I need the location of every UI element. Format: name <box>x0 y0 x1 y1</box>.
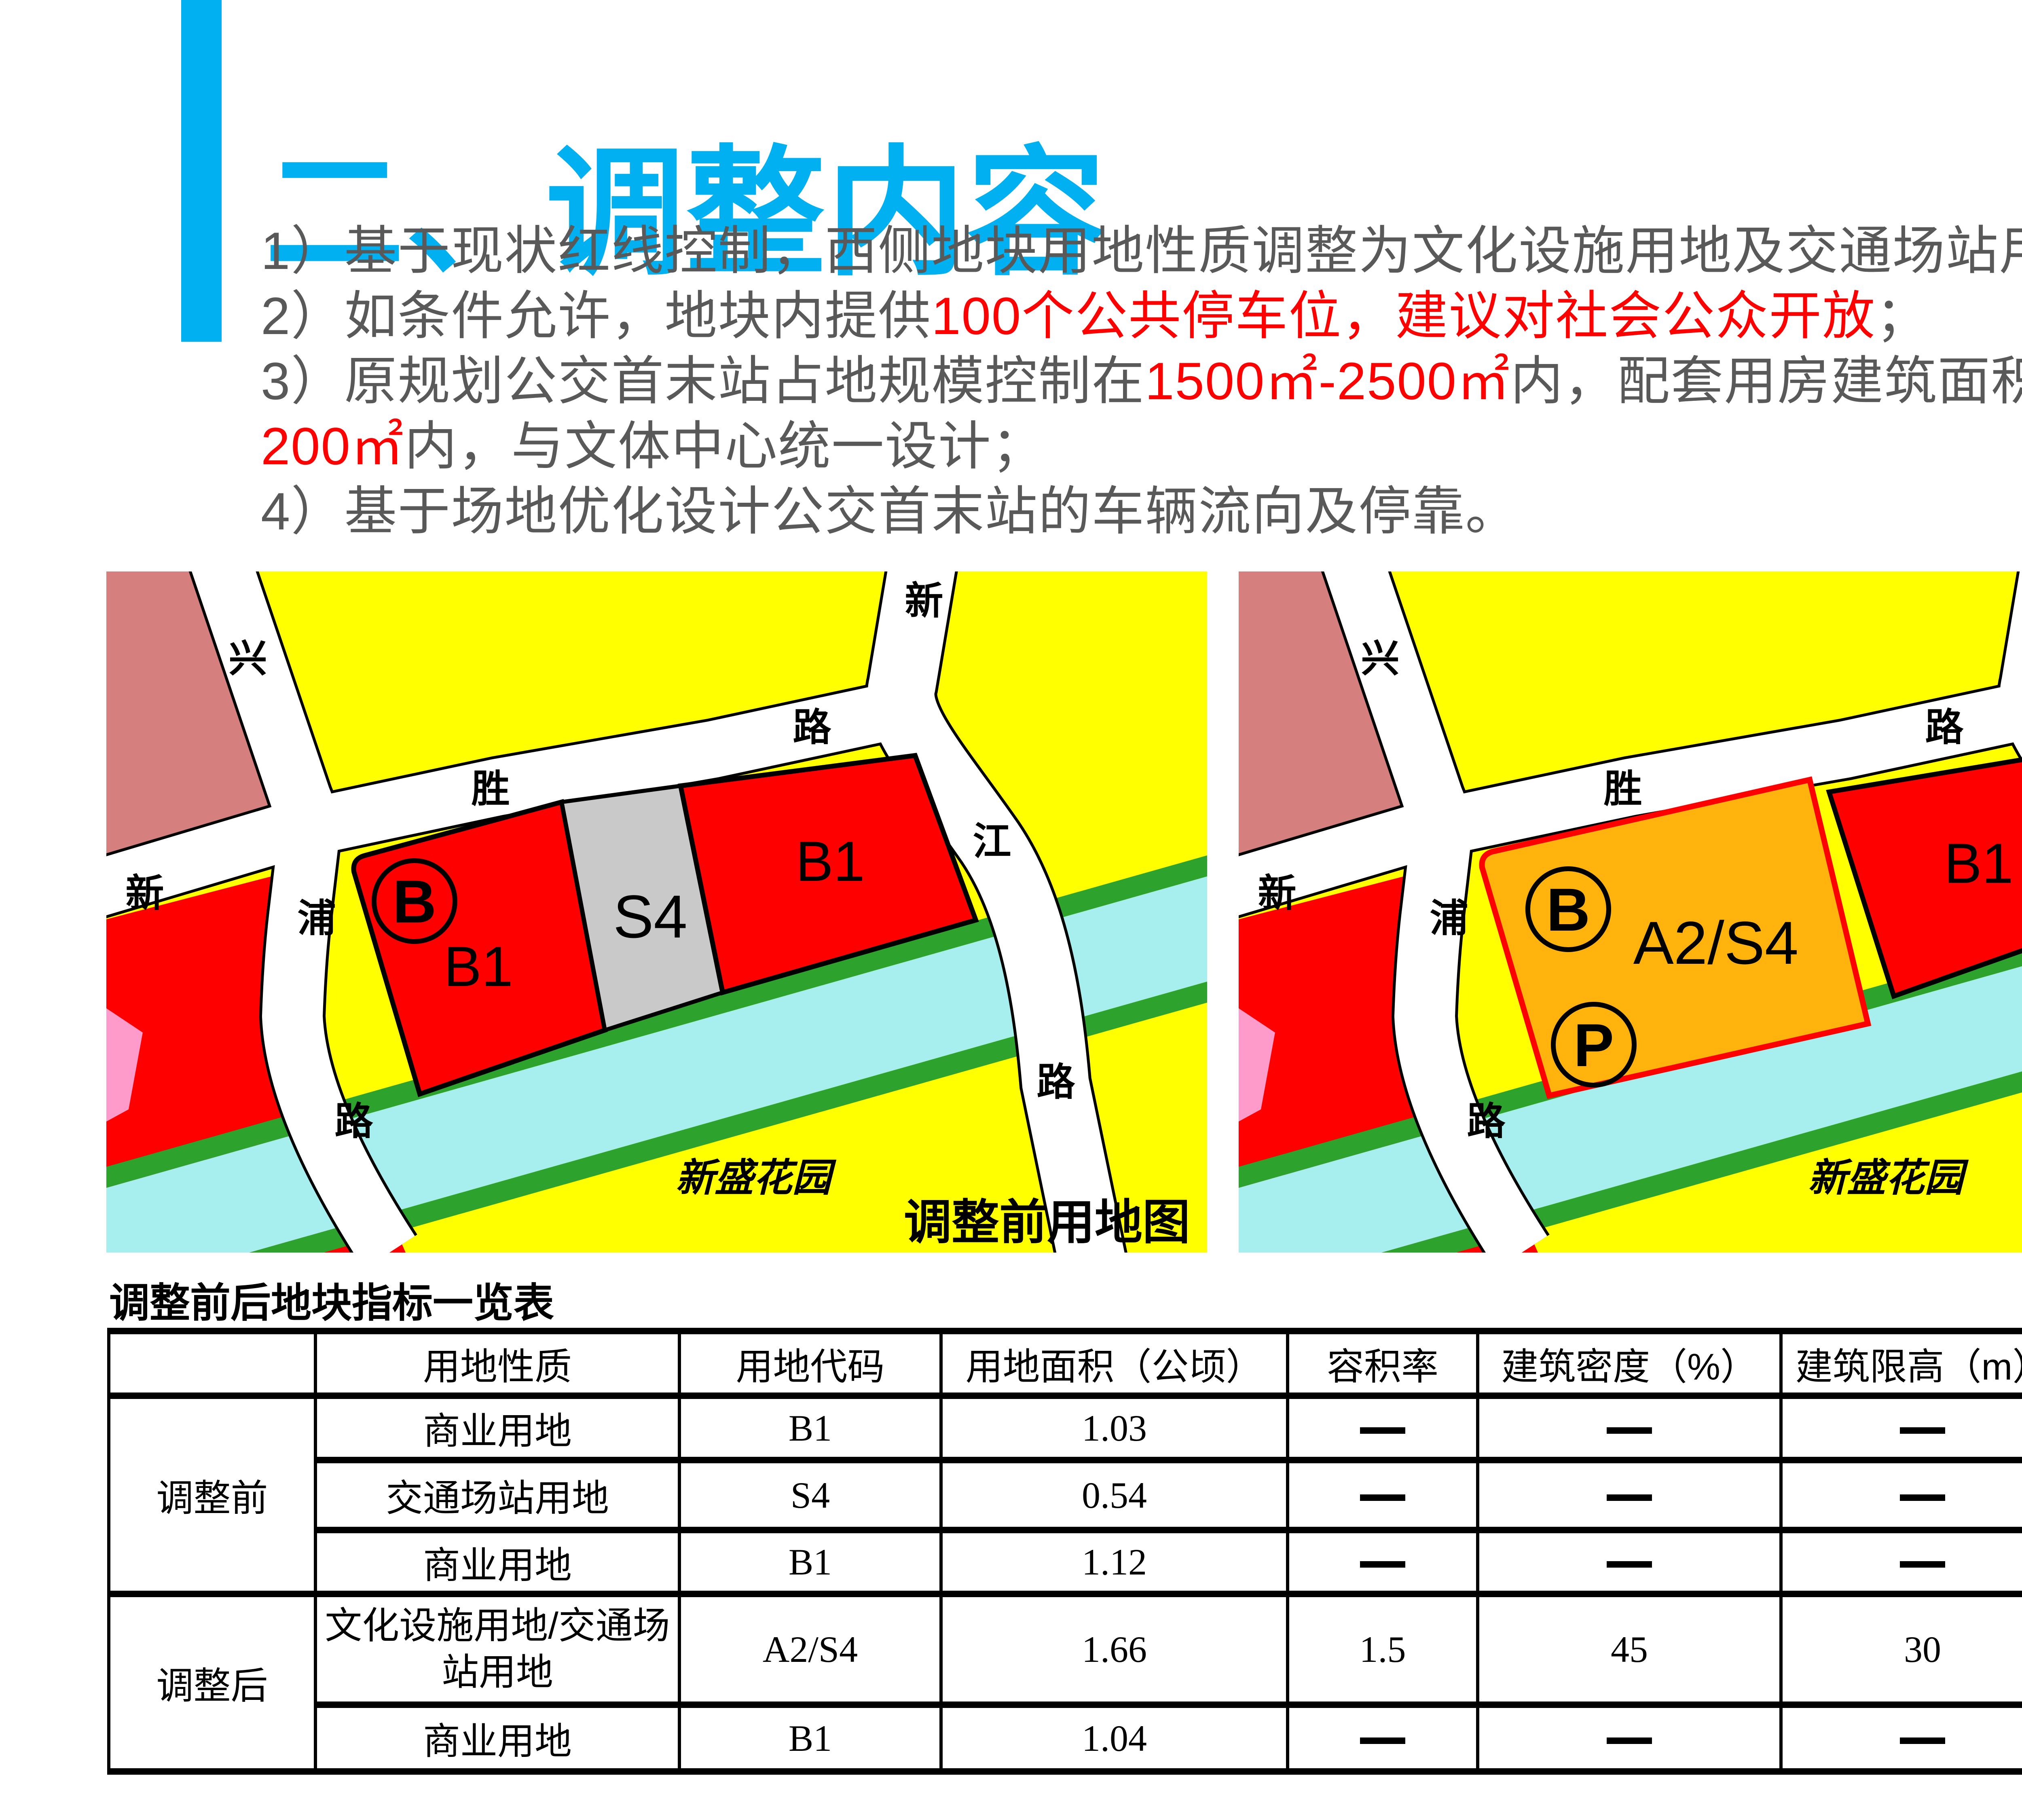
road-label-xin-e: 新 <box>905 580 943 622</box>
slide: 二、调整内容 1）基于现状红线控制，西侧地块用地性质调整为文化设施用地及交通场站… <box>0 0 2022 1820</box>
cell-code: S4 <box>679 1460 941 1530</box>
road-label-sheng: 胜 <box>1603 768 1642 811</box>
road-label-lu-e: 路 <box>1036 1061 1075 1104</box>
table-row: 商业用地 B1 1.04 —— —— —— —— <box>109 1705 2022 1771</box>
accent-bar <box>181 0 222 342</box>
dash: —— <box>1607 1427 1652 1434</box>
label-b1-west: B1 <box>444 935 513 998</box>
map-after-svg: B P A2/S4 B1 兴 新 浦 路 胜 路 新 江 路 新盛花园 调整后用… <box>1239 571 2022 1253</box>
dash: —— <box>1900 1494 1945 1501</box>
cell-nature: 商业用地 <box>315 1530 679 1594</box>
header-area: 用地面积（公顷） <box>941 1331 1288 1396</box>
point-2: 2）如条件允许，地块内提供100个公共停车位，建议对社会公众开放； <box>261 284 2022 349</box>
cell-density: 45 <box>1478 1594 1781 1705</box>
road-label-lu-mid: 路 <box>793 706 831 749</box>
road-label-lu-w: 路 <box>334 1100 373 1143</box>
cell-height: —— <box>1781 1396 2022 1460</box>
cell-area: 1.04 <box>941 1705 1288 1771</box>
dash: —— <box>1607 1737 1652 1744</box>
table-row: 商业用地 B1 1.12 —— —— —— —— <box>109 1530 2022 1594</box>
header-far: 容积率 <box>1288 1331 1478 1396</box>
cell-far: 1.5 <box>1288 1594 1478 1705</box>
dash: —— <box>1607 1561 1652 1568</box>
landuse-map-after: B P A2/S4 B1 兴 新 浦 路 胜 路 新 江 路 新盛花园 调整后用… <box>1239 571 2022 1253</box>
road-label-pu: 浦 <box>297 897 336 940</box>
cell-density: —— <box>1478 1460 1781 1530</box>
cell-area: 0.54 <box>941 1460 1288 1530</box>
dash: —— <box>1900 1737 1945 1744</box>
table-header-row: 用地性质 用地代码 用地面积（公顷） 容积率 建筑密度（%） 建筑限高（m） 绿… <box>109 1331 2022 1396</box>
road-label-lu-mid: 路 <box>1925 706 1964 749</box>
map-before-svg: B B1 S4 B1 兴 新 浦 路 胜 路 新 江 路 新盛花园 调整前用地图 <box>106 571 1207 1253</box>
road-label-xin-w: 新 <box>1258 872 1296 915</box>
cell-far: —— <box>1288 1396 1478 1460</box>
table-row: 调整前 商业用地 B1 1.03 —— —— —— —— <box>109 1396 2022 1460</box>
dash: —— <box>1360 1737 1405 1744</box>
point-1: 1）基于现状红线控制，西侧地块用地性质调整为文化设施用地及交通场站用地； <box>261 218 2022 284</box>
indicator-table: 用地性质 用地代码 用地面积（公顷） 容积率 建筑密度（%） 建筑限高（m） 绿… <box>107 1328 2022 1775</box>
p-marker-letter: P <box>1574 1011 1614 1079</box>
point-3b-end: 内，与文体中心统一设计； <box>404 417 1045 476</box>
cell-height: —— <box>1781 1530 2022 1594</box>
point-3-highlight: 1500㎡-2500㎡ <box>1145 351 1510 411</box>
cell-nature: 商业用地 <box>315 1396 679 1460</box>
dash: —— <box>1900 1427 1945 1434</box>
point-2-pre: 2）如条件允许，地块内提供 <box>261 286 931 345</box>
cell-code: B1 <box>679 1530 941 1594</box>
b-marker-letter: B <box>1546 876 1590 944</box>
point-3-pre: 3）原规划公交首末站占地规模控制在 <box>261 351 1145 411</box>
point-3: 3）原规划公交首末站占地规模控制在1500㎡-2500㎡内，配套用房建筑面积控制… <box>261 349 2022 414</box>
dash: —— <box>1360 1494 1405 1501</box>
b-marker-letter: B <box>393 868 436 935</box>
point-2-highlight: 100个公共停车位，建议对社会公众开放 <box>931 286 1876 345</box>
header-density: 建筑密度（%） <box>1478 1331 1781 1396</box>
cell-height: —— <box>1781 1460 2022 1530</box>
road-label-xin-w: 新 <box>125 872 164 915</box>
cell-density: —— <box>1478 1530 1781 1594</box>
cell-height: —— <box>1781 1705 2022 1771</box>
cell-area: 1.03 <box>941 1396 1288 1460</box>
cell-nature: 交通场站用地 <box>315 1460 679 1530</box>
road-label-xing: 兴 <box>1361 637 1399 680</box>
header-blank <box>109 1331 315 1396</box>
point-3-cont: 200㎡内，与文体中心统一设计； <box>261 414 2022 479</box>
table-title: 调整前后地块指标一览表 <box>109 1270 554 1329</box>
road-label-pu: 浦 <box>1430 897 1468 940</box>
garden-label: 新盛花园 <box>676 1156 837 1200</box>
dash: —— <box>1360 1561 1405 1568</box>
cell-code: A2/S4 <box>679 1594 941 1705</box>
cell-nature: 文化设施用地/交通场站用地 <box>315 1594 679 1705</box>
dash: —— <box>1607 1494 1652 1501</box>
cell-nature: 商业用地 <box>315 1705 679 1771</box>
label-b1-east: B1 <box>1944 832 2013 895</box>
table-row: 交通场站用地 S4 0.54 —— —— —— —— <box>109 1460 2022 1530</box>
cell-far: —— <box>1288 1460 1478 1530</box>
point-4: 4）基于场地优化设计公交首末站的车辆流向及停靠。 <box>261 479 2022 544</box>
road-label-sheng: 胜 <box>471 768 510 811</box>
group-after-label: 调整后 <box>109 1594 315 1771</box>
cell-code: B1 <box>679 1396 941 1460</box>
road-label-lu-w: 路 <box>1467 1100 1506 1143</box>
road-label-jiang: 江 <box>973 820 1011 863</box>
cell-area: 1.12 <box>941 1530 1288 1594</box>
landuse-map-before: B B1 S4 B1 兴 新 浦 路 胜 路 新 江 路 新盛花园 调整前用地图 <box>106 571 1207 1253</box>
table-row: 调整后 文化设施用地/交通场站用地 A2/S4 1.66 1.5 45 30 2… <box>109 1594 2022 1705</box>
cell-height: 30 <box>1781 1594 2022 1705</box>
label-a2s4: A2/S4 <box>1633 909 1799 977</box>
cell-code: B1 <box>679 1705 941 1771</box>
cell-area: 1.66 <box>941 1594 1288 1705</box>
garden-label: 新盛花园 <box>1808 1156 1969 1200</box>
cell-density: —— <box>1478 1396 1781 1460</box>
label-b1-east: B1 <box>795 830 865 893</box>
cell-density: —— <box>1478 1705 1781 1771</box>
header-height: 建筑限高（m） <box>1781 1331 2022 1396</box>
group-before-label: 调整前 <box>109 1396 315 1594</box>
point-1-text: 1）基于现状红线控制，西侧地块用地性质调整为文化设施用地及交通场站用地； <box>261 221 2022 280</box>
point-3-end: 内，配套用房建筑面积控制在 <box>1510 351 2022 411</box>
label-s4: S4 <box>613 882 687 950</box>
point-3b-highlight: 200㎡ <box>261 417 404 476</box>
header-nature: 用地性质 <box>315 1331 679 1396</box>
point-2-end: ； <box>1876 286 1929 345</box>
dash: —— <box>1900 1561 1945 1568</box>
cell-far: —— <box>1288 1530 1478 1594</box>
dash: —— <box>1360 1427 1405 1434</box>
header-code: 用地代码 <box>679 1331 941 1396</box>
bullet-points: 1）基于现状红线控制，西侧地块用地性质调整为文化设施用地及交通场站用地； 2）如… <box>261 218 2022 544</box>
road-label-xing: 兴 <box>228 637 267 680</box>
cell-far: —— <box>1288 1705 1478 1771</box>
point-4-text: 4）基于场地优化设计公交首末站的车辆流向及停靠。 <box>261 482 1519 541</box>
map-before-caption: 调整前用地图 <box>904 1196 1190 1249</box>
